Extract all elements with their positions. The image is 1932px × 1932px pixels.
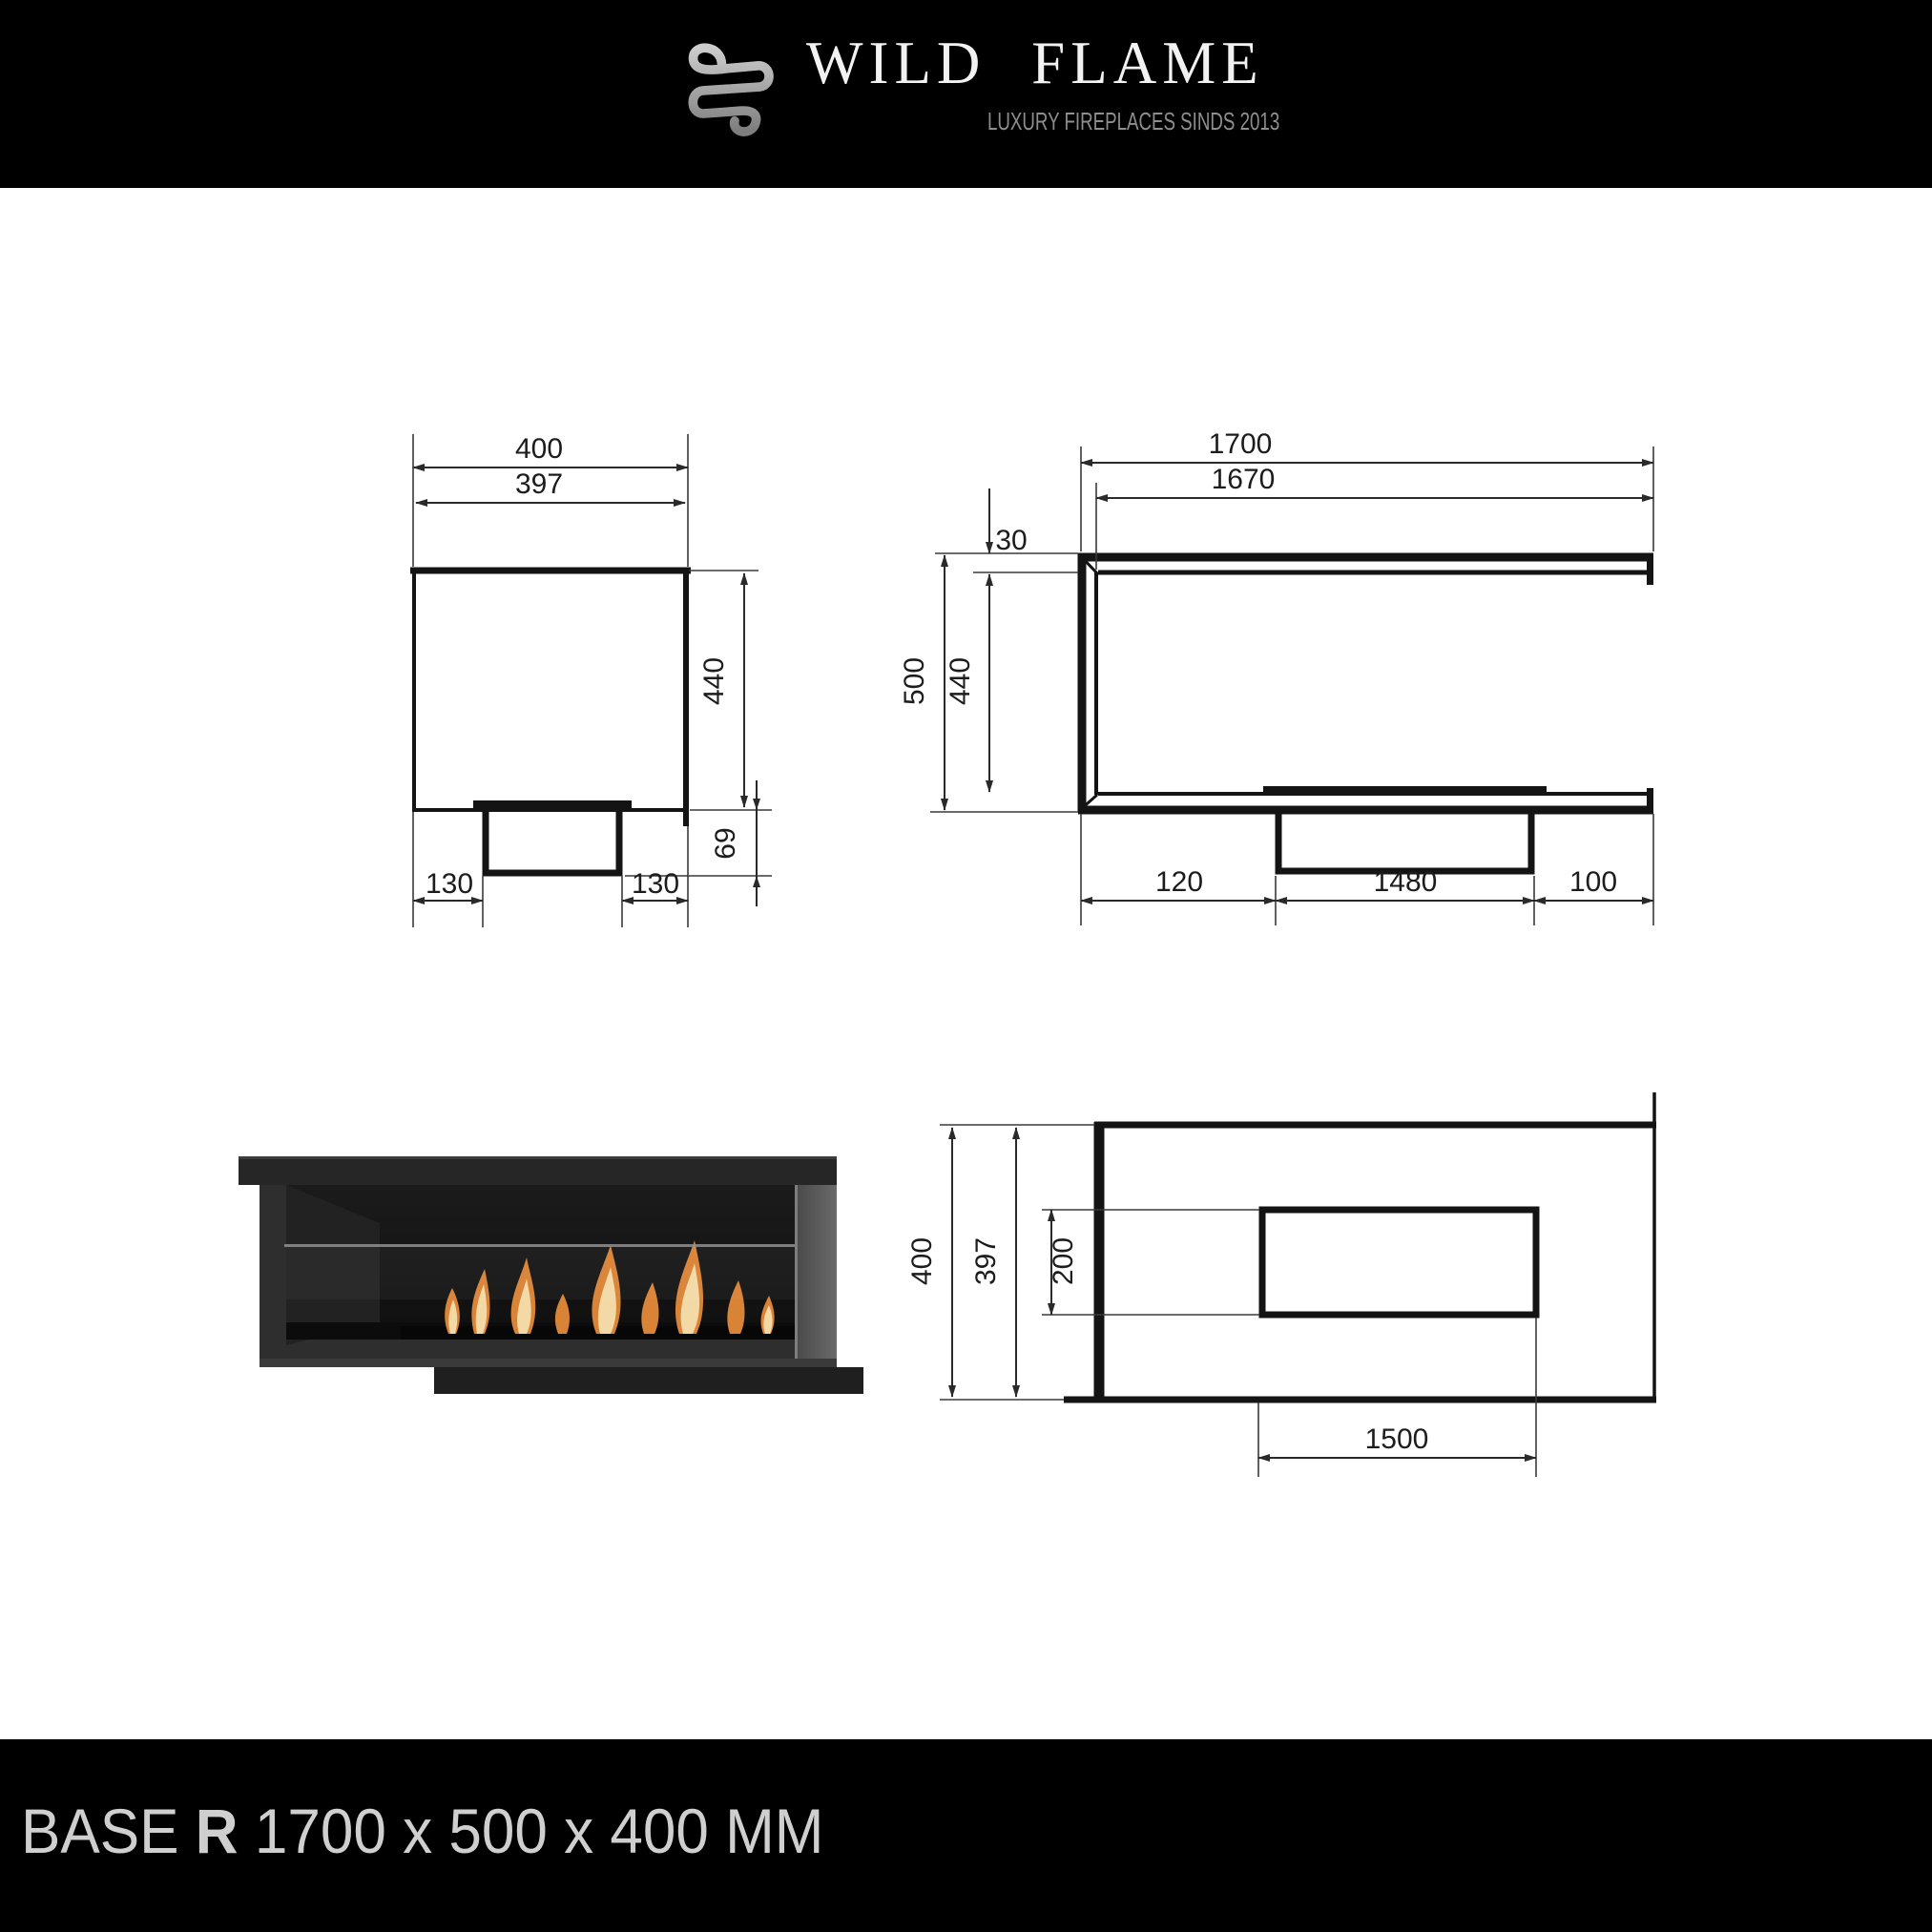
dim-side-inset-left: 130 — [426, 868, 473, 900]
dim-front-burner-offset-right: 100 — [1569, 866, 1617, 898]
pedestal-lip — [473, 800, 632, 812]
dim-side-inset-right: 130 — [632, 868, 679, 900]
dim-side-height-inner: 440 — [698, 657, 730, 705]
pedestal — [486, 812, 619, 873]
burner-box — [1278, 814, 1531, 871]
footer-bar: BASE R 1700 x 500 x 400 MM — [0, 1739, 1932, 1932]
glass-front-edge — [284, 1244, 797, 1247]
top-plate — [239, 1156, 837, 1185]
side-view-drawing: 400 397 440 69 130 130 — [410, 433, 772, 927]
product-title: BASE R 1700 x 500 x 400 MM — [21, 1795, 823, 1867]
fireplace-product-photo — [239, 1156, 863, 1394]
dim-side-pedestal-height: 69 — [710, 827, 741, 859]
technical-drawings: 400 397 440 69 130 130 — [0, 0, 1932, 1932]
dim-front-width-total: 1700 — [1209, 428, 1273, 460]
dim-side-width-inner: 397 — [515, 468, 563, 500]
front-view-drawing: 1700 1670 30 500 440 120 1480 100 — [899, 428, 1653, 925]
model-prefix: BASE — [21, 1796, 179, 1866]
dim-front-height-inner: 440 — [945, 657, 976, 705]
spec-sheet-page: WILD FLAME LUXURY FIREPLACES SINDS 2013 — [0, 0, 1932, 1932]
burner-opening — [1262, 1210, 1536, 1315]
model-dimensions: 1700 x 500 x 400 MM — [239, 1796, 824, 1866]
dim-top-burner-length: 1500 — [1365, 1423, 1429, 1455]
dim-front-height-total: 500 — [899, 657, 930, 705]
dim-front-burner-offset-left: 120 — [1155, 866, 1203, 898]
model-variant: R — [196, 1796, 239, 1866]
dim-front-top-thickness: 30 — [995, 525, 1027, 556]
pedestal-base — [434, 1367, 863, 1394]
dim-top-depth-inner: 397 — [970, 1237, 1002, 1285]
dim-side-width-outer: 400 — [515, 433, 563, 465]
dim-top-depth-outer: 400 — [906, 1237, 938, 1285]
dim-top-burner-depth: 200 — [1048, 1237, 1079, 1285]
glass-side-panel — [795, 1185, 837, 1359]
burner-lip — [1263, 786, 1547, 795]
top-view-drawing: 400 397 200 1500 — [906, 1092, 1656, 1477]
body-bottom-lip — [260, 1359, 837, 1367]
dim-front-width-inner: 1670 — [1212, 464, 1276, 495]
dim-front-burner-length: 1480 — [1374, 866, 1438, 898]
